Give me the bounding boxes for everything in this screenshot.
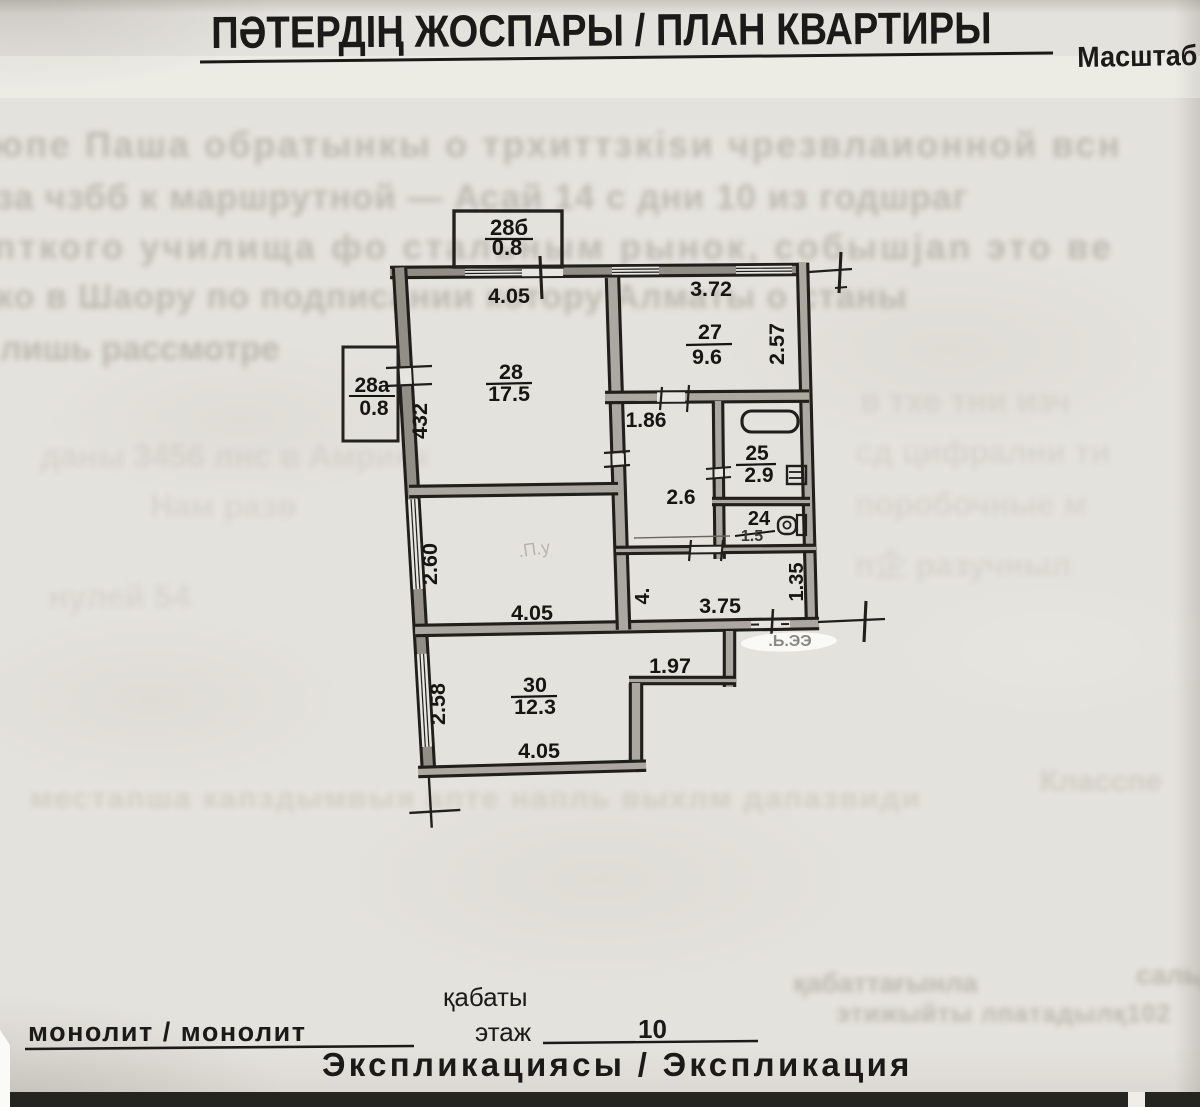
svg-text:2.9: 2.9 <box>744 464 773 487</box>
svg-text:.П.у: .П.у <box>517 537 551 561</box>
svg-text:2.60: 2.60 <box>418 543 442 585</box>
svg-text:4.05: 4.05 <box>511 601 553 625</box>
svg-text:0.8: 0.8 <box>492 235 523 260</box>
svg-text:28: 28 <box>499 360 523 384</box>
svg-text:24: 24 <box>748 508 771 530</box>
svg-text:17.5: 17.5 <box>488 382 530 406</box>
svg-text:4.: 4. <box>632 588 654 605</box>
svg-text:1.97: 1.97 <box>649 654 691 678</box>
svg-text:9.6: 9.6 <box>692 345 722 369</box>
svg-text:2.58: 2.58 <box>426 683 450 725</box>
svg-text:27: 27 <box>698 320 722 344</box>
svg-text:2.57: 2.57 <box>765 323 789 365</box>
svg-text:2.6: 2.6 <box>666 486 695 509</box>
svg-text:4.05: 4.05 <box>518 739 560 763</box>
svg-text:28а: 28а <box>354 374 389 397</box>
svg-text:3.72: 3.72 <box>690 277 732 301</box>
svg-text:25: 25 <box>745 442 769 465</box>
svg-text:3.75: 3.75 <box>699 594 741 618</box>
svg-text:1.86: 1.86 <box>626 409 667 432</box>
svg-text:4.05: 4.05 <box>488 284 530 308</box>
svg-text:30: 30 <box>523 673 547 697</box>
svg-text:12.3: 12.3 <box>514 695 556 719</box>
svg-text:1.5: 1.5 <box>741 528 763 545</box>
svg-text:.Ь.ЭЭ: .Ь.ЭЭ <box>768 633 811 650</box>
svg-text:0.8: 0.8 <box>359 397 389 420</box>
svg-text:432: 432 <box>408 403 432 439</box>
svg-text:1.35: 1.35 <box>786 563 808 602</box>
